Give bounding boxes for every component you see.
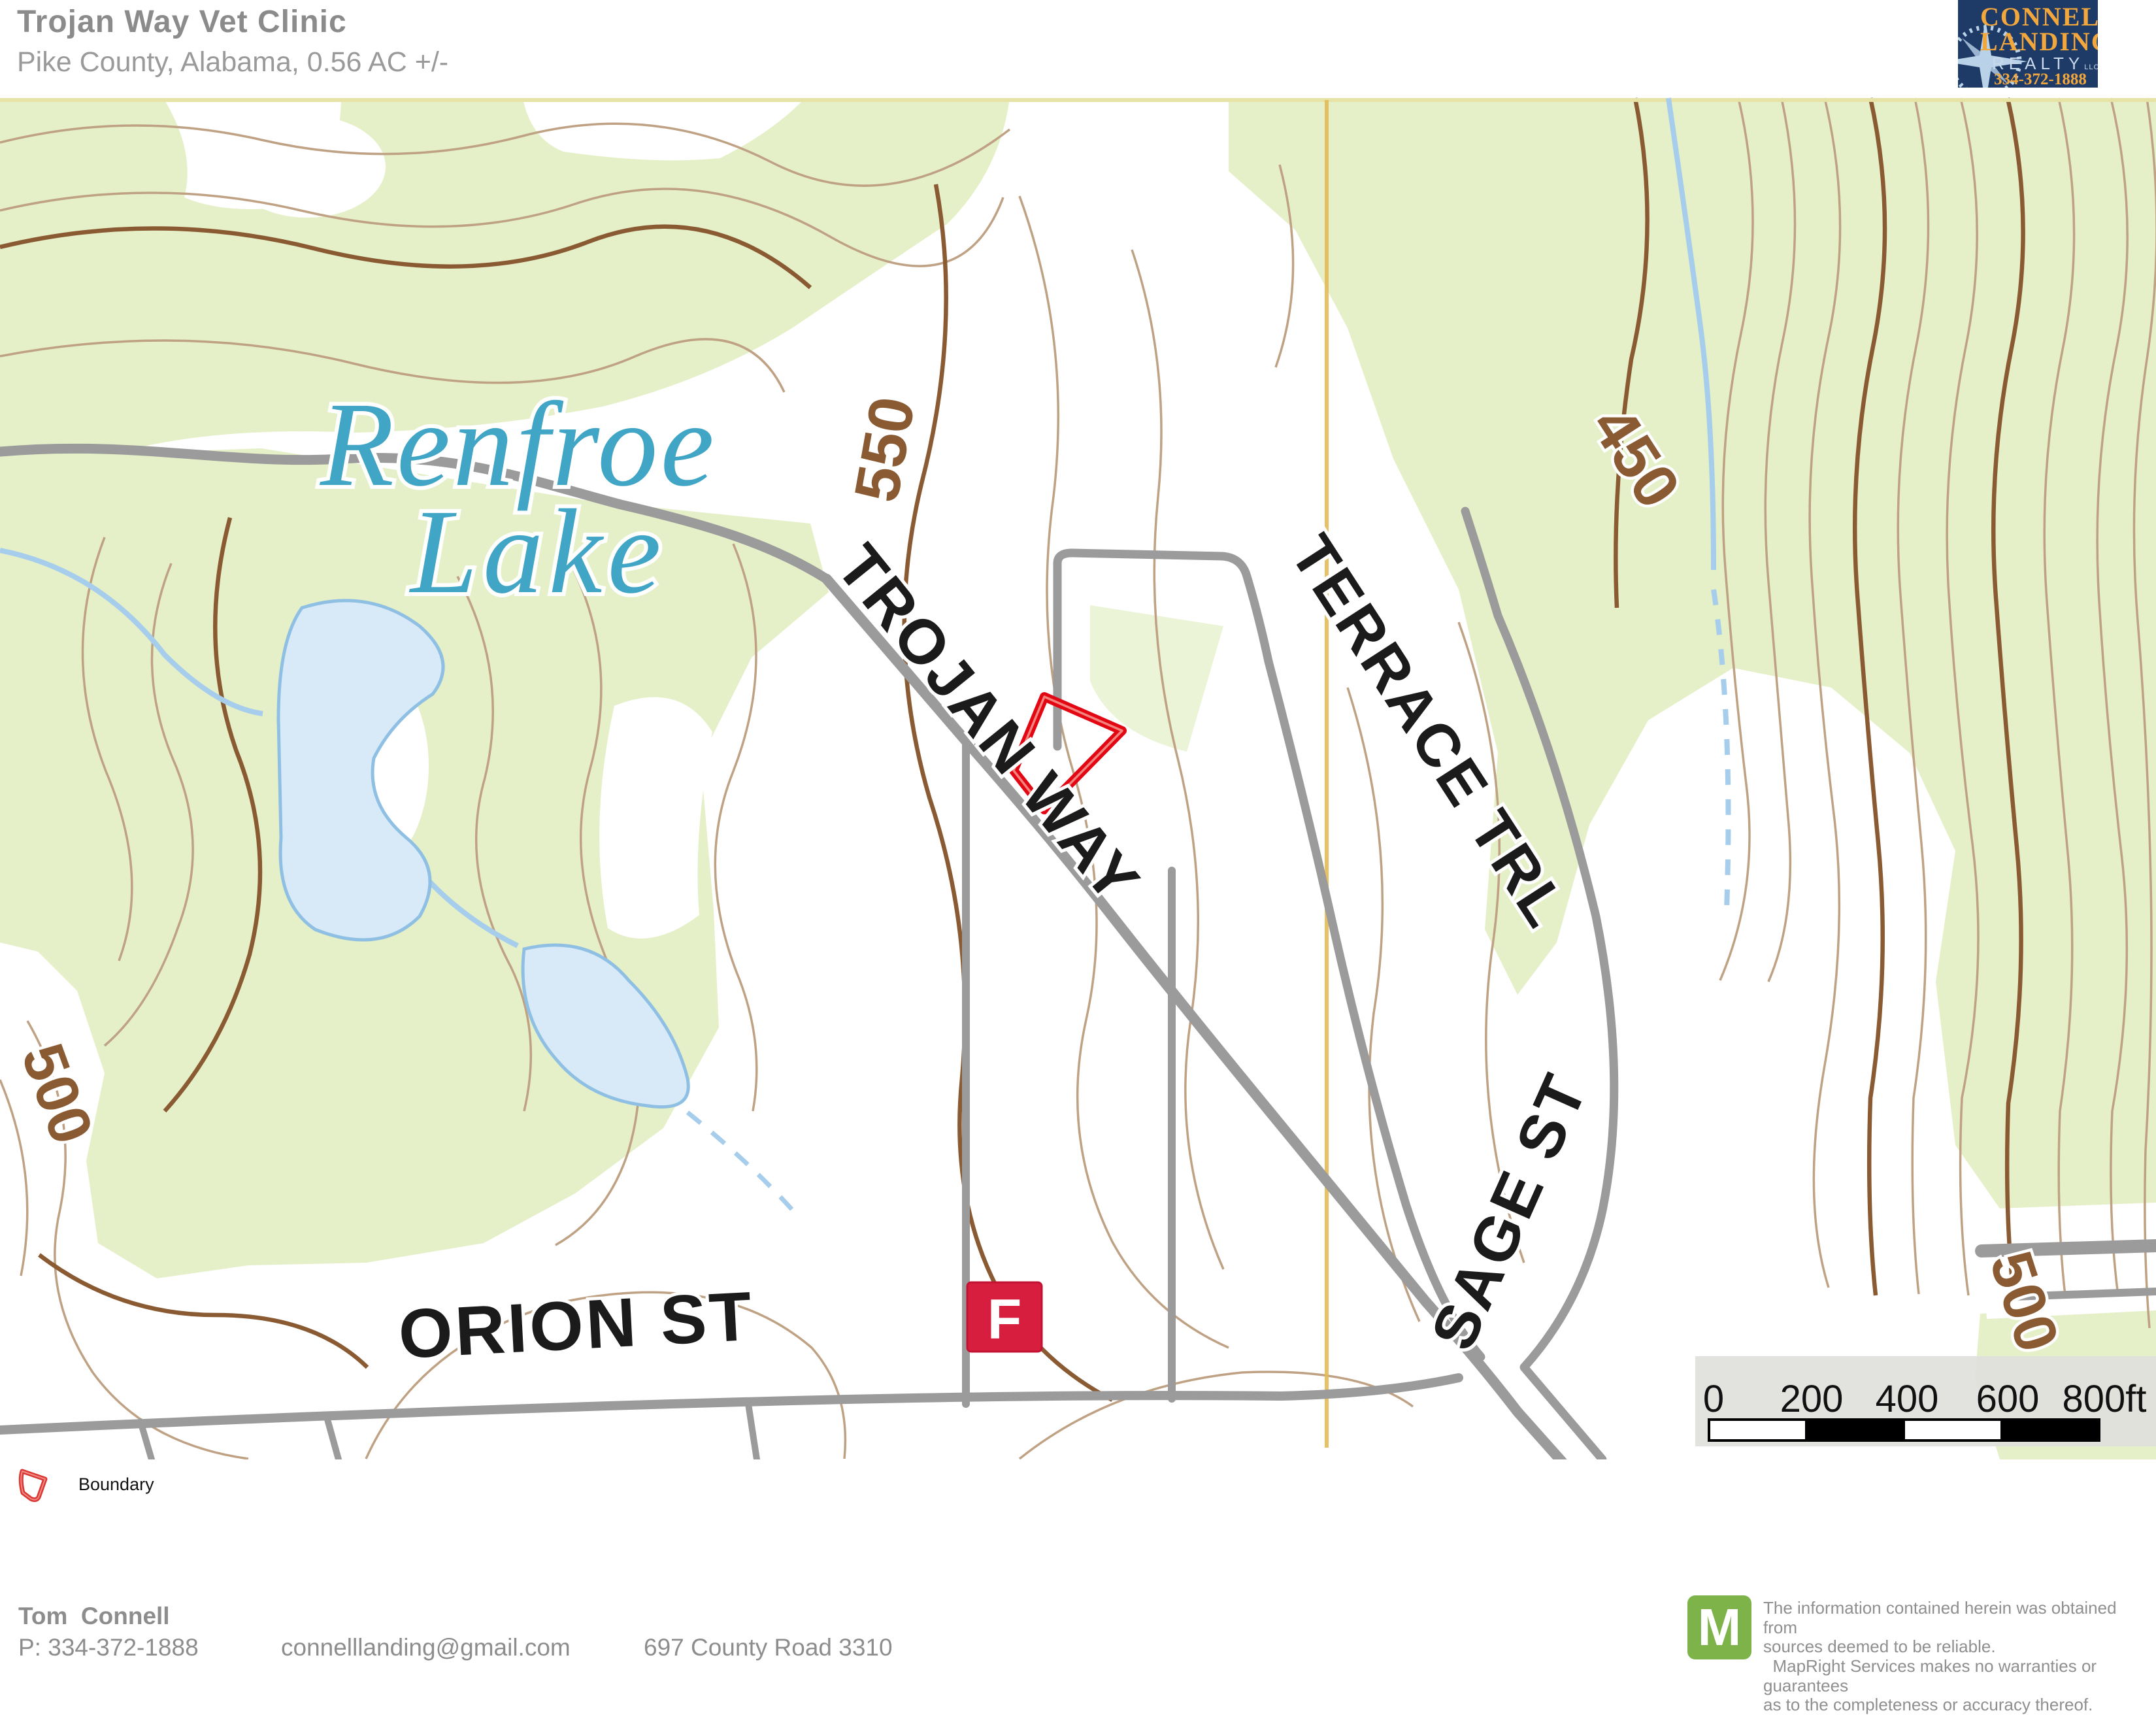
logo-phone: 334-372-1888 [1984,71,2097,88]
page-subtitle: Pike County, Alabama, 0.56 AC +/- [17,46,448,78]
disclaimer-line-1: The information contained herein was obt… [1763,1599,2149,1637]
agent-address: 697 County Road 3310 [644,1634,893,1661]
topo-map-canvas[interactable]: Renfroe Lake TROJAN WAY TERRACE TRL SAGE… [0,95,2156,1459]
logo-line-landing: LANDING [1980,26,2098,57]
agent-name: Tom Connell [18,1603,170,1630]
road-orion-st [0,1378,1459,1430]
scale-tick-0: 0 [1703,1378,1724,1420]
disclaimer-line-2: sources deemed to be reliable. [1763,1637,2149,1657]
agent-email[interactable]: connelllanding@gmail.com [281,1634,571,1661]
legend-boundary-label: Boundary [78,1474,154,1495]
contour-label-550: 550 [841,391,928,507]
scale-tick-400: 400 [1876,1378,1939,1420]
scale-bar: 0 200 400 600 800ft [1695,1356,2156,1446]
point-marker-f[interactable]: F [967,1282,1042,1352]
brokerage-logo: CONNELL LANDING REALTYLLC 334-372-1888 [1958,0,2098,88]
marker-letter: F [987,1288,1022,1351]
disclaimer-text: The information contained herein was obt… [1763,1599,2149,1715]
agent-phone: P: 334-372-1888 [18,1634,199,1661]
sage-st-label: SAGE ST [1418,1063,1601,1359]
scale-tick-800: 800ft [2063,1378,2147,1420]
lake-label-line2: Lake [408,485,667,619]
disclaimer-line-3: MapRight Services makes no warranties or… [1763,1657,2149,1695]
disclaimer-line-4: as to the completeness or accuracy there… [1763,1695,2149,1715]
legend: Boundary [14,1465,154,1503]
orion-st-label: ORION ST [397,1278,756,1373]
header: Trojan Way Vet Clinic Pike County, Alaba… [17,4,448,78]
contour-label-500-left: 500 [8,1035,105,1152]
scale-tick-200: 200 [1780,1378,1844,1420]
mapright-logo-letter: M [1698,1597,1742,1657]
map-export-page: Trojan Way Vet Clinic Pike County, Alaba… [0,0,2156,1667]
scale-tick-600: 600 [1976,1378,2040,1420]
page-title: Trojan Way Vet Clinic [17,4,448,40]
boundary-legend-icon [14,1465,52,1503]
mapright-logo: M [1687,1595,1751,1659]
